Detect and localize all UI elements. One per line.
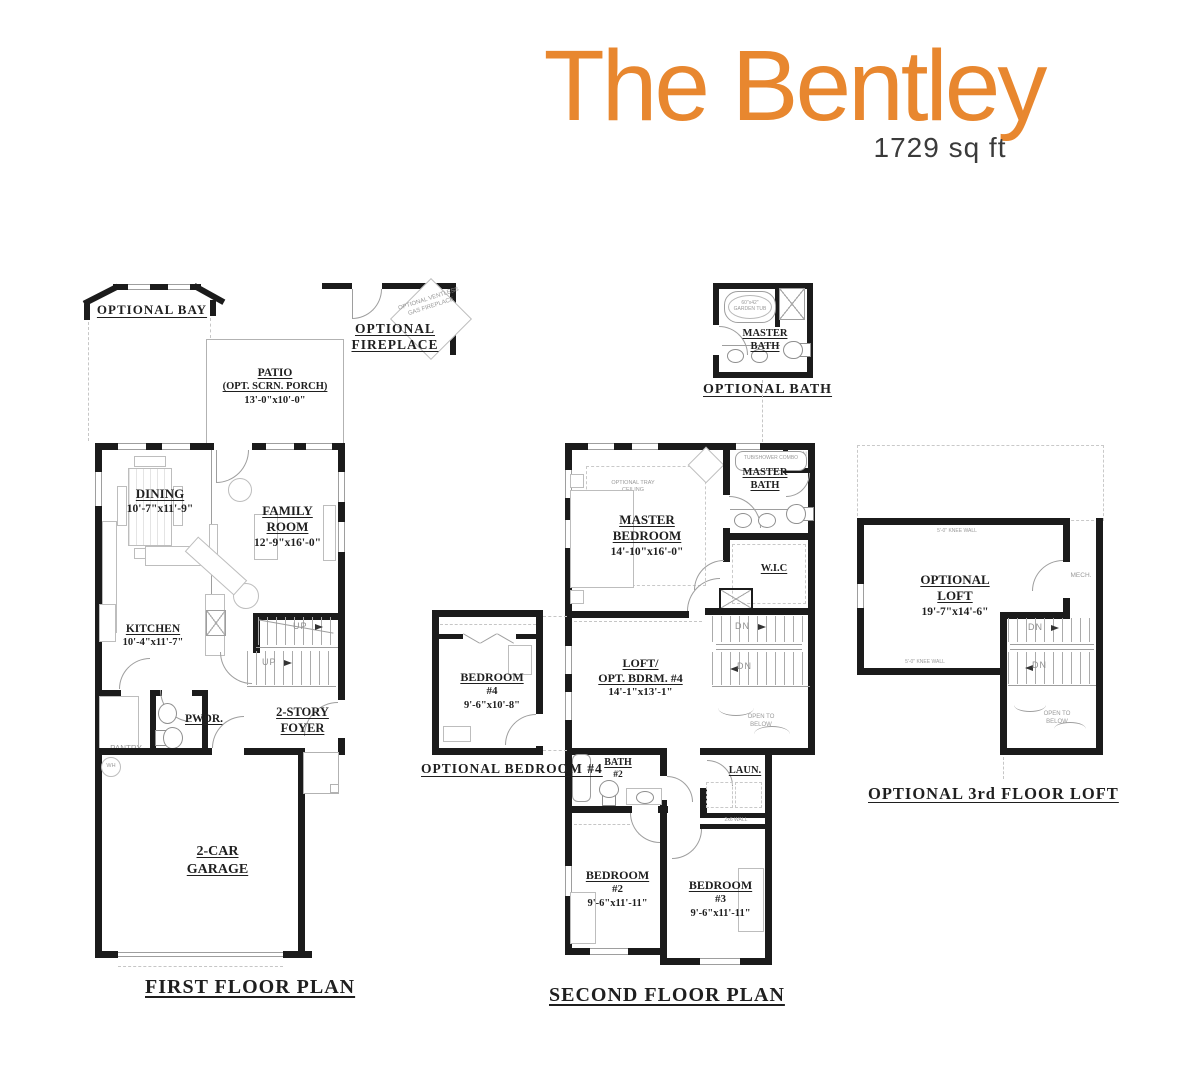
room-label-bedroom3: BEDROOM #3 9'-6"x11'-11"	[672, 878, 769, 920]
plan-geometry: BATH	[733, 479, 797, 492]
plan-geometry: #4	[446, 685, 538, 699]
dn-label: DN	[1028, 622, 1043, 632]
up-arrow	[284, 660, 295, 666]
window	[95, 472, 102, 506]
window	[565, 646, 572, 674]
wall-segment	[439, 634, 463, 639]
wall-segment	[713, 372, 813, 378]
door-arc	[667, 776, 693, 802]
door-arc	[352, 289, 382, 319]
plan-geometry: 14'-1"x13'-1"	[583, 686, 698, 700]
room-label-patio: PATIO (OPT. SCRN. PORCH) 13'-0"x10'-0"	[213, 366, 337, 407]
wall-segment	[1063, 518, 1070, 562]
plan-geometry: OPT. BDRM. #4	[583, 671, 698, 686]
plan-geometry: GARAGE	[165, 861, 270, 879]
plan-geometry: BEDROOM	[592, 528, 702, 544]
plan-geometry: #3	[672, 893, 769, 907]
plan-geometry: 19'-7"x14'-6"	[903, 605, 1007, 619]
plan-geometry: FAMILY	[240, 503, 335, 519]
plan-geometry: LOFT/	[583, 656, 698, 671]
door-arc	[505, 714, 536, 745]
plan-geometry: DINING	[110, 486, 210, 502]
plan-geometry	[1010, 649, 1094, 650]
plan-geometry: LOFT	[903, 588, 1007, 604]
chase	[719, 588, 753, 610]
window	[306, 443, 332, 450]
wall-segment	[1063, 598, 1070, 612]
room-label-kitchen: KITCHEN 10'-4"x11'-7"	[112, 622, 194, 650]
room-label-bedroom2: BEDROOM #2 9'-6"x11'-11"	[575, 868, 660, 910]
plan-geometry: OPTIONAL	[344, 321, 446, 337]
wall-segment	[723, 538, 730, 562]
window	[588, 443, 614, 450]
plan-geometry: BEDROOM	[575, 868, 660, 883]
wall-segment	[84, 304, 90, 320]
wall-segment	[565, 611, 689, 618]
first-floor-caption: FIRST FLOOR PLAN	[145, 976, 340, 999]
plan-geometry: MASTER	[734, 327, 796, 340]
plan-geometry: 2-STORY	[255, 705, 350, 721]
up-label: UP	[262, 657, 277, 667]
optional-bedroom4-caption: OPTIONAL BEDROOM #4	[421, 761, 571, 777]
wall-segment	[1000, 612, 1007, 755]
plan-geometry: MASTER	[592, 512, 702, 528]
up-label: UP	[293, 621, 308, 631]
plan-geometry: MASTER	[733, 466, 797, 479]
plan-geometry: 9'-6"x11'-11"	[575, 897, 660, 910]
dresser	[443, 726, 471, 742]
plan-geometry: BEDROOM	[446, 670, 538, 685]
plan-geometry	[480, 633, 497, 643]
room-label-optional-loft: OPTIONAL LOFT 19'-7"x14'-6"	[903, 572, 1007, 619]
powder-toilet	[155, 726, 183, 750]
plan-geometry	[134, 456, 166, 467]
plan-geometry: PATIO	[213, 366, 337, 380]
bath2-toilet	[598, 780, 620, 806]
plan-geometry: BEDROOM	[672, 878, 769, 893]
window	[162, 443, 190, 450]
plan-geometry	[463, 633, 480, 643]
wall-segment	[705, 608, 815, 615]
wall-segment	[723, 533, 815, 540]
plan-geometry: KITCHEN	[112, 622, 194, 636]
stairs-up	[247, 651, 336, 685]
plan-geometry: 13'-0"x10'-0"	[213, 394, 337, 407]
plan-geometry	[212, 748, 244, 755]
window	[338, 472, 345, 502]
wall-segment	[807, 283, 813, 378]
bath2-sink	[636, 791, 654, 804]
wall-segment	[660, 748, 667, 776]
plan-geometry	[536, 714, 543, 746]
garden-tub-note: 60"x42" GARDEN TUB	[733, 300, 767, 313]
plan-geometry: FIREPLACE	[344, 337, 446, 353]
plan-geometry: 10'-4"x11'-7"	[112, 636, 194, 649]
plan-geometry	[730, 509, 788, 510]
dryer	[735, 782, 762, 808]
room-label-wic: W.I.C	[746, 562, 802, 575]
dashed-line	[762, 380, 763, 442]
plan-geometry: #2	[575, 883, 660, 897]
dn-arrow	[1051, 625, 1062, 631]
pantry-shelves	[99, 696, 139, 750]
second-floor-caption: SECOND FLOOR PLAN	[549, 984, 764, 1007]
shower	[779, 288, 805, 320]
dn-arrow	[758, 624, 769, 630]
wall-segment	[700, 748, 815, 755]
plan-geometry	[214, 443, 252, 450]
dashed-line	[118, 966, 283, 967]
up-arrow	[315, 624, 326, 630]
square-footage: 1729 sq ft	[850, 132, 1030, 164]
plan-geometry: BATH	[734, 340, 796, 353]
third-floor-loft-caption: OPTIONAL 3rd FLOOR LOFT	[868, 784, 1086, 804]
wall-segment	[660, 813, 667, 953]
wall-segment	[432, 748, 543, 755]
wall-note: 2x6 WALL	[714, 817, 758, 823]
window	[128, 284, 150, 290]
plan-geometry: 9'-6"x11'-11"	[672, 907, 769, 920]
open-to-below: OPEN TO BELOW	[737, 714, 785, 729]
plan-title: The Bentley	[488, 34, 1100, 139]
wall-segment	[723, 443, 730, 495]
wall-segment	[210, 300, 216, 316]
plan-geometry	[118, 956, 283, 957]
wall-segment	[700, 824, 772, 829]
dashed-line	[543, 616, 567, 617]
dashed-line	[574, 621, 702, 622]
plan-geometry	[716, 649, 802, 650]
plan-geometry: 12'-9"x16'-0"	[240, 536, 335, 550]
plan-geometry: 10'-7"x11'-9"	[110, 502, 210, 516]
armchair	[228, 478, 252, 502]
room-label-bath2: BATH #2	[598, 757, 638, 781]
knee-wall-note: 5'-0" KNEE WALL	[926, 528, 988, 534]
dashed-line	[440, 624, 536, 625]
dashed-line	[210, 318, 211, 338]
plan-geometry: (OPT. SCRN. PORCH)	[213, 380, 337, 393]
plan-geometry: LAUN.	[720, 764, 770, 777]
tub-shower-note: TUB/SHOWER COMBO	[742, 455, 800, 461]
wall-segment	[857, 668, 1007, 675]
wall-segment	[516, 634, 537, 639]
window	[700, 958, 740, 965]
wall-segment	[1096, 518, 1103, 755]
wall-segment	[432, 610, 543, 617]
dashed-line	[88, 322, 89, 441]
dashed-line	[1003, 757, 1004, 779]
bath-sink	[758, 513, 776, 528]
window	[168, 284, 190, 290]
plan-geometry: #2	[598, 770, 638, 782]
wall-segment	[95, 748, 102, 958]
window	[266, 443, 294, 450]
dn-label: DN	[737, 661, 752, 671]
door-arc	[672, 829, 702, 859]
plan-geometry: BATH	[598, 757, 638, 770]
plan-geometry: W.I.C	[746, 562, 802, 575]
bath-toilet	[786, 503, 814, 525]
dashed-line	[574, 824, 630, 825]
door-arc	[119, 658, 150, 689]
plan-geometry	[247, 686, 336, 687]
plan-geometry	[216, 450, 217, 483]
plan-geometry	[632, 806, 658, 813]
plan-geometry: FOYER	[255, 721, 350, 737]
window	[736, 443, 760, 450]
room-label-laundry: LAUN.	[720, 764, 770, 777]
plan-geometry	[1008, 685, 1096, 686]
room-label-master-bath-opt: MASTER BATH	[734, 327, 796, 353]
wall-segment	[95, 748, 305, 755]
bath-sink	[734, 513, 752, 528]
plan-geometry	[712, 686, 810, 687]
room-label-loft: LOFT/ OPT. BDRM. #4 14'-1"x13'-1"	[583, 656, 698, 700]
plan-geometry	[1010, 644, 1094, 645]
room-label-master-bath: MASTER BATH	[733, 466, 797, 492]
window	[857, 584, 864, 608]
dishwasher	[206, 610, 226, 636]
plan-geometry	[716, 644, 802, 645]
plan-geometry: 14'-10"x16'-0"	[592, 545, 702, 559]
room-label-family: FAMILY ROOM 12'-9"x16'-0"	[240, 503, 335, 550]
knee-wall-note: 5'-0" KNEE WALL	[890, 659, 960, 665]
room-label-foyer: 2-STORY FOYER	[255, 705, 350, 736]
room-label-mech: MECH.	[1064, 572, 1098, 580]
wall-segment	[1000, 748, 1103, 755]
window	[338, 522, 345, 552]
window	[565, 692, 572, 720]
plan-geometry	[330, 784, 339, 793]
wall-segment	[322, 283, 352, 289]
roof-outline	[857, 445, 1104, 521]
dashed-line	[543, 750, 567, 751]
plan-geometry: ROOM	[240, 519, 335, 535]
plan-geometry	[118, 952, 283, 953]
plan-geometry: 2-CAR	[165, 843, 270, 861]
plan-geometry	[570, 474, 584, 488]
plan-geometry	[256, 647, 338, 648]
dn-label: DN	[1032, 660, 1047, 670]
mech-door-arc	[1032, 560, 1063, 591]
dn-label: DN	[735, 621, 750, 631]
window	[590, 948, 628, 955]
room-label-bedroom4: BEDROOM #4 9'-6"x10'-8"	[446, 670, 538, 712]
water-heater-label: WH	[101, 763, 121, 770]
room-label-master-bedroom: MASTER BEDROOM 14'-10"x16'-0"	[592, 512, 702, 559]
plan-geometry	[570, 590, 584, 604]
plan-geometry: OPTIONAL	[903, 572, 1007, 588]
optional-bay-caption: OPTIONAL BAY	[96, 302, 208, 318]
wall-segment	[857, 518, 1070, 525]
wall-segment	[808, 443, 815, 753]
plan-geometry: 9'-6"x10'-8"	[446, 699, 538, 712]
room-label-garage: 2-CAR GARAGE	[165, 843, 270, 878]
plan-geometry	[352, 289, 353, 319]
room-label-dining: DINING 10'-7"x11'-9"	[110, 486, 210, 517]
optional-bath-caption: OPTIONAL BATH	[703, 382, 819, 398]
window	[632, 443, 658, 450]
plan-geometry	[497, 633, 514, 643]
optional-fireplace-caption: OPTIONAL FIREPLACE	[344, 321, 446, 353]
window	[118, 443, 146, 450]
door-arc	[630, 813, 660, 843]
floor-plan-sheet: The Bentley 1729 sq ft OPTIONAL BAY OPTI…	[0, 0, 1200, 1082]
wall-segment	[432, 610, 439, 755]
open-to-below: OPEN TO BELOW	[1034, 711, 1080, 726]
door-arc	[1014, 698, 1046, 712]
washer	[706, 782, 733, 808]
